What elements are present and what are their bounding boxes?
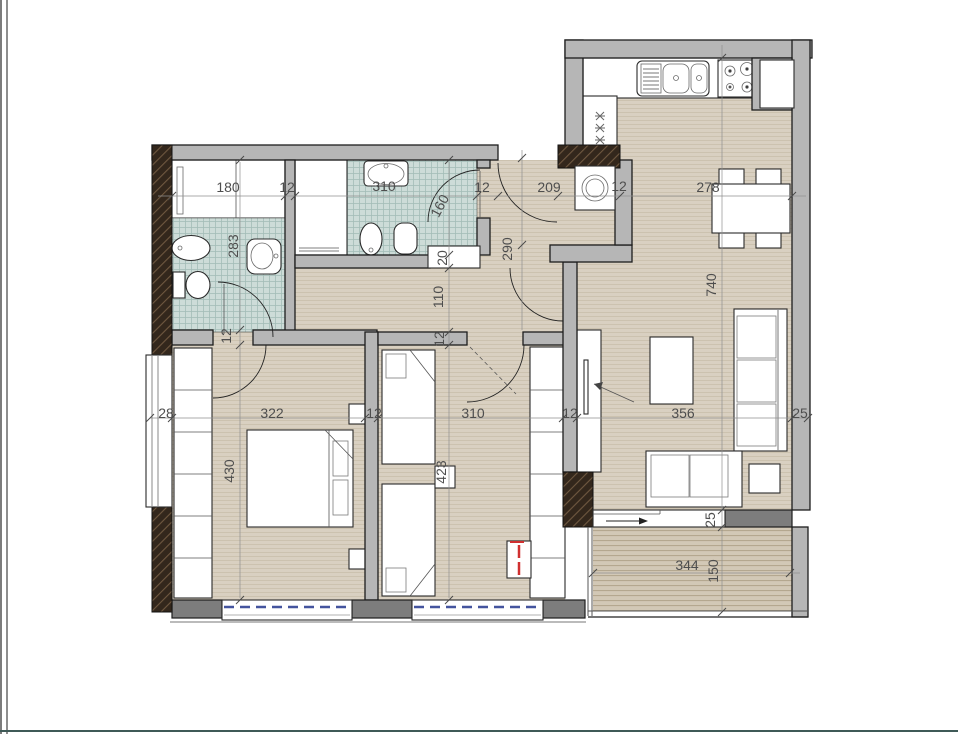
dim-label: 344	[675, 557, 699, 573]
coffee-table-icon	[650, 337, 693, 404]
dim-label: 322	[260, 405, 284, 421]
pillow-icon	[386, 568, 406, 592]
dim-label: 150	[705, 559, 721, 583]
window-left	[146, 355, 172, 507]
wardrobe-icon	[174, 348, 212, 598]
dim-label: 25	[792, 405, 808, 421]
dim-label: 20	[434, 250, 450, 266]
dining-chair-icon	[756, 232, 781, 248]
dim-label: 12	[562, 405, 578, 421]
structural-wall-icon	[152, 505, 172, 612]
dim-label: 278	[696, 179, 720, 195]
dining-chair-icon	[756, 169, 781, 185]
dim-label: 12	[366, 405, 382, 421]
dim-label: 209	[537, 179, 561, 195]
wardrobe-icon	[530, 347, 565, 598]
window-pier	[352, 600, 412, 618]
dining-chair-icon	[719, 169, 744, 185]
structural-wall-icon	[563, 472, 593, 527]
bidet-icon	[394, 223, 417, 254]
dim-label: 740	[703, 273, 719, 297]
dim-label: 28	[158, 405, 174, 421]
dim-label: 430	[221, 459, 237, 483]
dim-label: 423	[433, 460, 449, 484]
dim-label: 12	[431, 331, 447, 347]
bathroom-2	[295, 160, 477, 255]
laundry	[575, 166, 615, 210]
balcony-wall	[725, 510, 792, 527]
floor-plan-svg: 180 12 310 12 209 12 278 283 160 20 110 …	[0, 0, 958, 734]
dim-label: 356	[671, 405, 695, 421]
nightstand-icon	[349, 549, 367, 569]
toilet-icon	[186, 272, 210, 299]
nightstand-icon	[349, 404, 367, 424]
tv-icon	[584, 360, 588, 414]
tv-console-icon	[577, 330, 601, 472]
dim-label: 12	[611, 178, 627, 194]
dim-label: 12	[279, 179, 295, 195]
dim-label: 110	[430, 286, 446, 309]
dim-label: 290	[499, 237, 515, 261]
toilet-tank-icon	[173, 272, 185, 298]
structural-wall-icon	[152, 145, 172, 357]
dim-label: 310	[461, 405, 485, 421]
window-pier	[172, 600, 222, 618]
pillow-icon	[386, 354, 406, 378]
dining-table-icon	[712, 184, 790, 233]
side-table-icon	[749, 464, 780, 493]
pillow-icon	[333, 480, 348, 515]
window-pier	[543, 600, 585, 618]
dim-label: 283	[225, 234, 241, 258]
dim-label: 25	[702, 512, 718, 528]
structural-wall-icon	[558, 145, 620, 168]
shower-icon	[295, 160, 347, 255]
window-bedroom1	[222, 600, 352, 620]
window-bedroom2	[412, 600, 543, 620]
dim-label: 310	[372, 178, 396, 194]
dim-label: 180	[216, 179, 240, 195]
mirror-icon	[177, 167, 183, 214]
dining-chair-icon	[719, 232, 744, 248]
floor-plan-page: 180 12 310 12 209 12 278 283 160 20 110 …	[0, 0, 958, 734]
dim-label: 12	[218, 328, 234, 344]
dim-label: 12	[474, 179, 490, 195]
shaft-niche	[760, 60, 794, 108]
